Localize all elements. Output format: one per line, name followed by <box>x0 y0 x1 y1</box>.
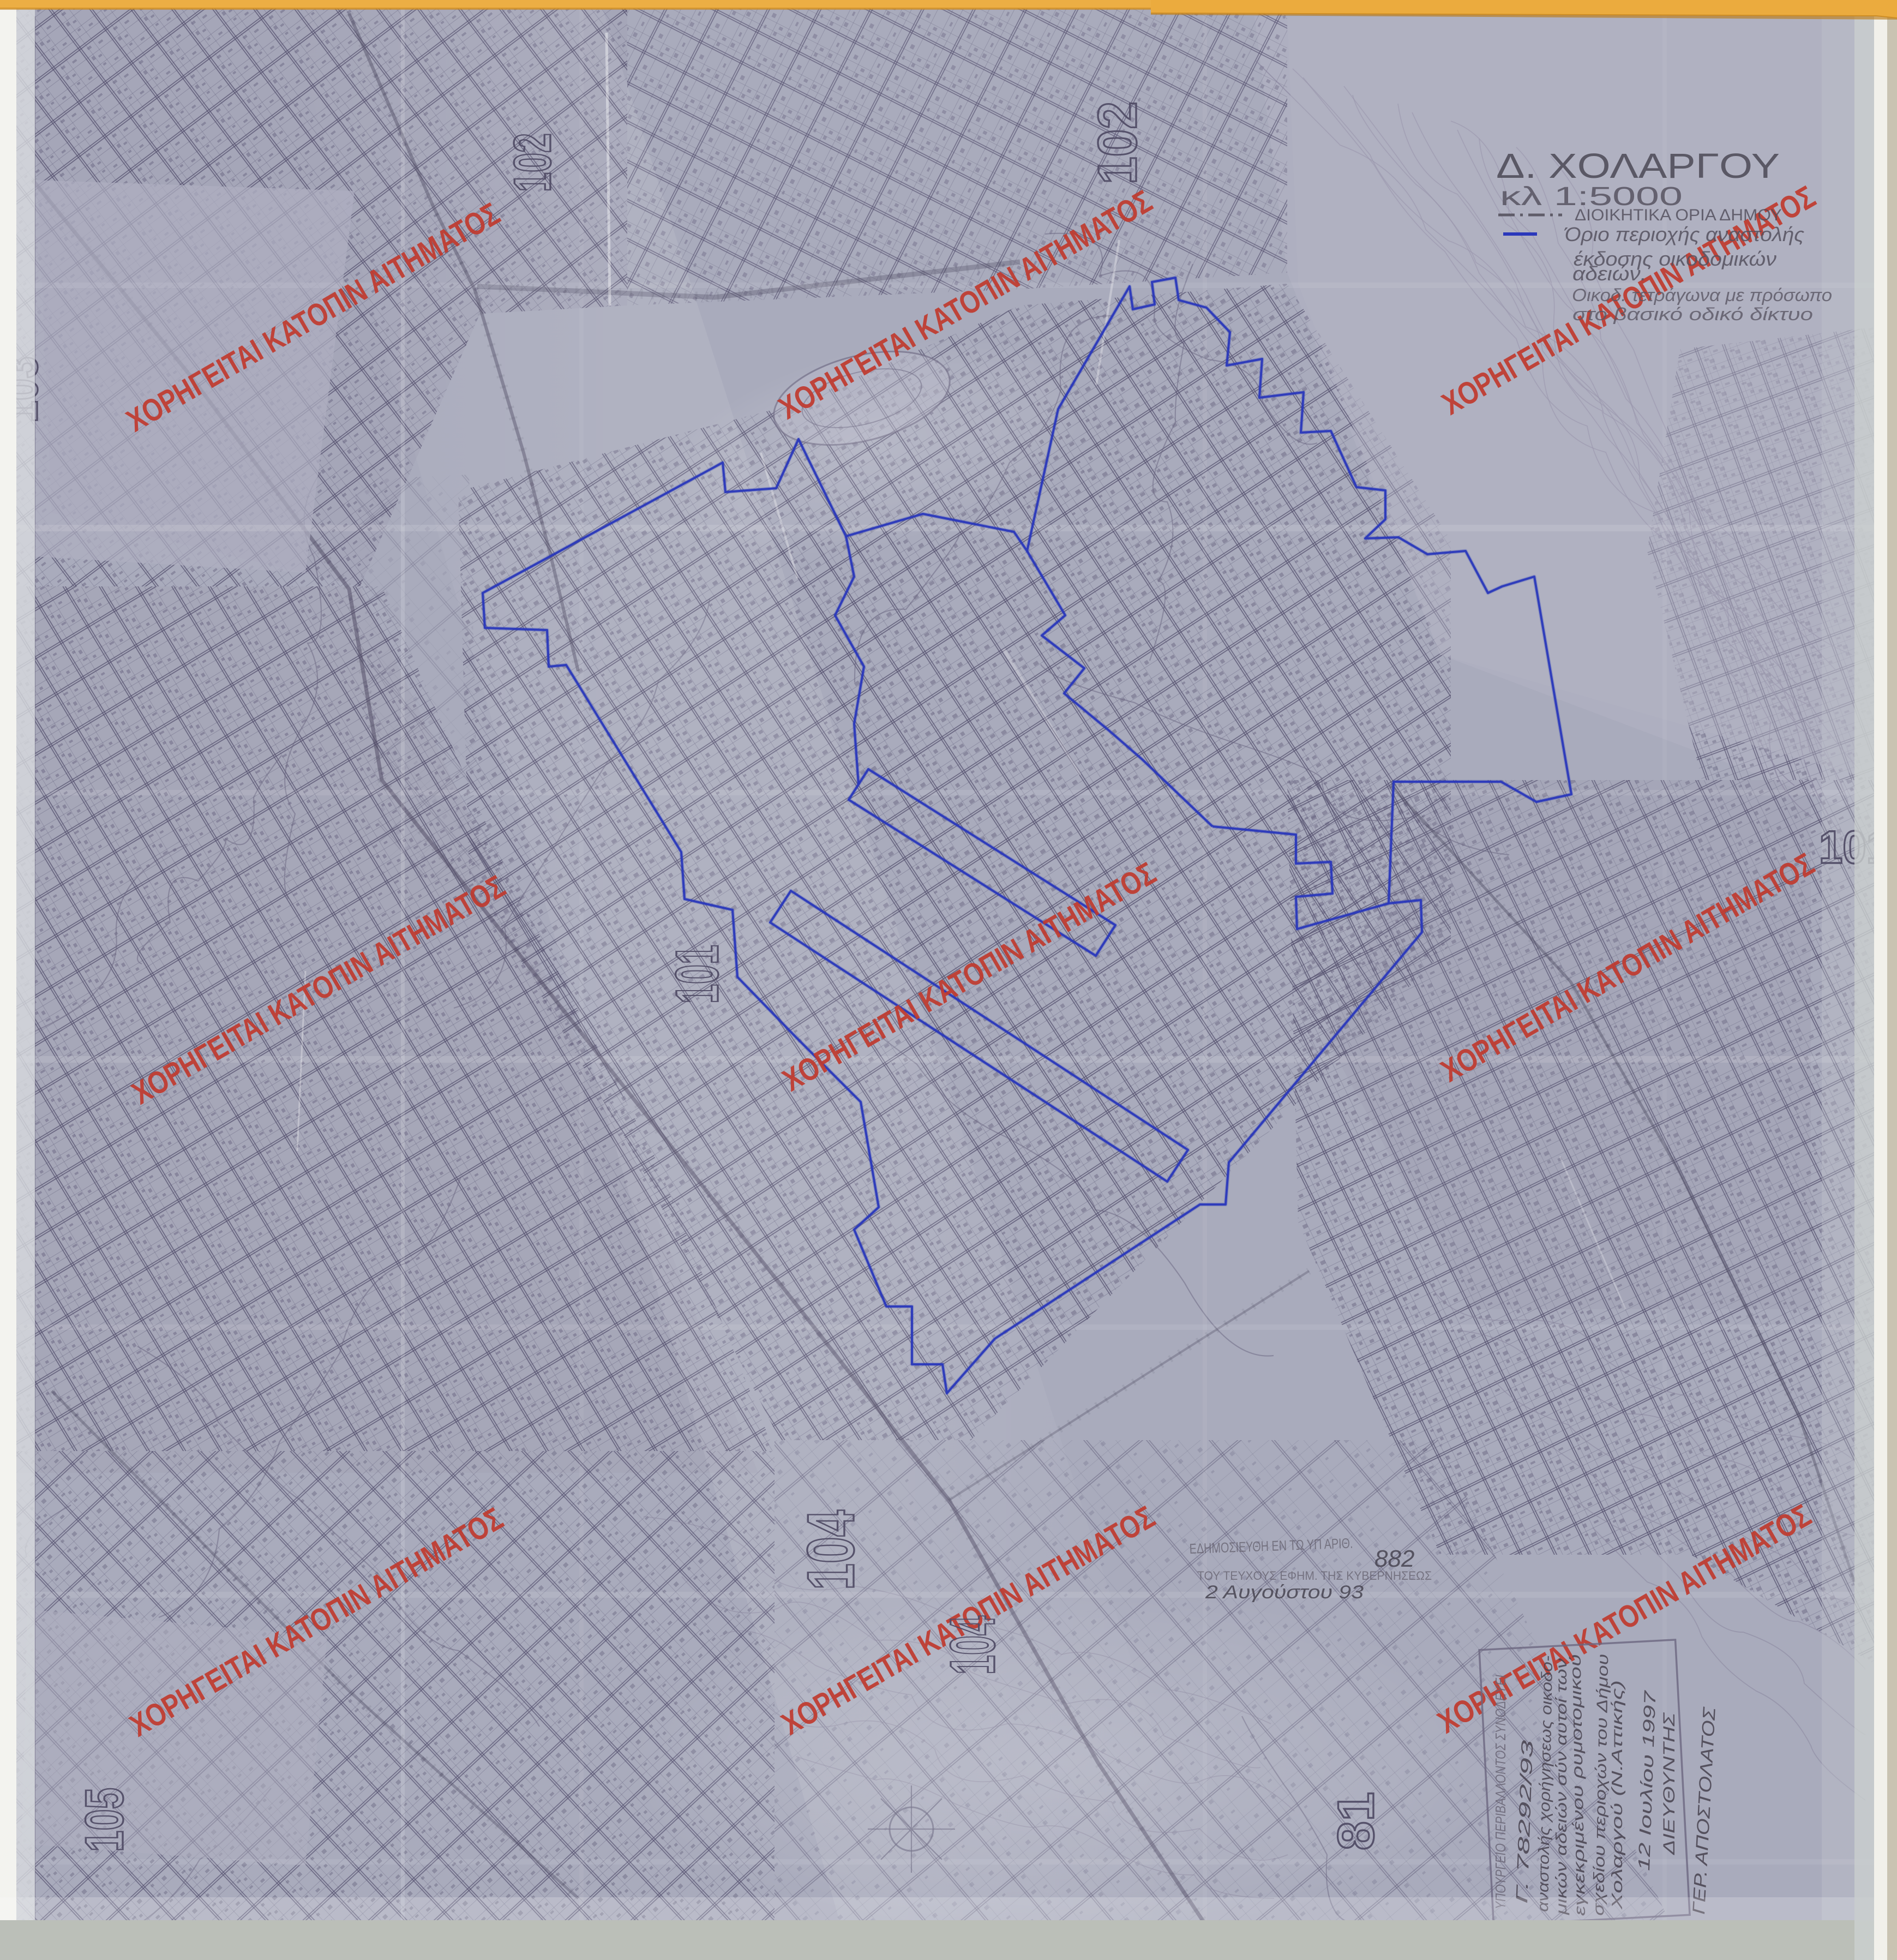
svg-text:102: 102 <box>1087 101 1148 184</box>
svg-text:ΤΟΥ ΤΕΥΧΟΥΣ ΕΦΗΜ. ΤΗΣ ΚΥΒΕΡΝΗΣ: ΤΟΥ ΤΕΥΧΟΥΣ ΕΦΗΜ. ΤΗΣ ΚΥΒΕΡΝΗΣΕΩΣ <box>1197 1569 1432 1583</box>
svg-text:104: 104 <box>937 1616 1008 1675</box>
svg-text:2 Αυγούστου 93: 2 Αυγούστου 93 <box>1205 1582 1364 1603</box>
svg-text:882: 882 <box>1374 1545 1414 1572</box>
svg-text:αδειών.: αδειών. <box>1572 262 1647 285</box>
svg-text:Δ. ΧΟΛΑΡΓΟΥ: Δ. ΧΟΛΑΡΓΟΥ <box>1496 146 1780 185</box>
svg-text:Οικοδ. τετράγωνα με πρόσωπο: Οικοδ. τετράγωνα με πρόσωπο <box>1572 285 1832 305</box>
svg-text:104: 104 <box>794 1510 868 1590</box>
svg-text:102: 102 <box>503 133 562 192</box>
svg-text:ΥΠΟΥΡΓΕΙΟ ΠΕΡΙΒΑΛΛΟΝΤΟΣ ΣΥΝΟΔΕ: ΥΠΟΥΡΓΕΙΟ ΠΕΡΙΒΑΛΛΟΝΤΟΣ ΣΥΝΟΔΕΥΕΙ <box>1492 1675 1509 1909</box>
svg-text:στο βασικό οδικό δίκτυο: στο βασικό οδικό δίκτυο <box>1572 304 1813 324</box>
svg-text:Όριο περιοχής αναστολής: Όριο περιοχής αναστολής <box>1564 223 1805 245</box>
svg-text:Χολαργού (Ν.Αττικής): Χολαργού (Ν.Αττικής) <box>1608 1680 1625 1910</box>
svg-text:105: 105 <box>74 1788 134 1852</box>
svg-text:ΔΙΕΥΘΥΝΤΗΣ: ΔΙΕΥΘΥΝΤΗΣ <box>1660 1712 1678 1856</box>
svg-text:101: 101 <box>664 945 731 1004</box>
svg-text:81: 81 <box>1327 1792 1384 1850</box>
svg-text:ΔΙΟΙΚΗΤΙΚΑ ΟΡΙΑ ΔΗΜΟΥ: ΔΙΟΙΚΗΤΙΚΑ ΟΡΙΑ ΔΗΜΟΥ <box>1575 206 1782 224</box>
